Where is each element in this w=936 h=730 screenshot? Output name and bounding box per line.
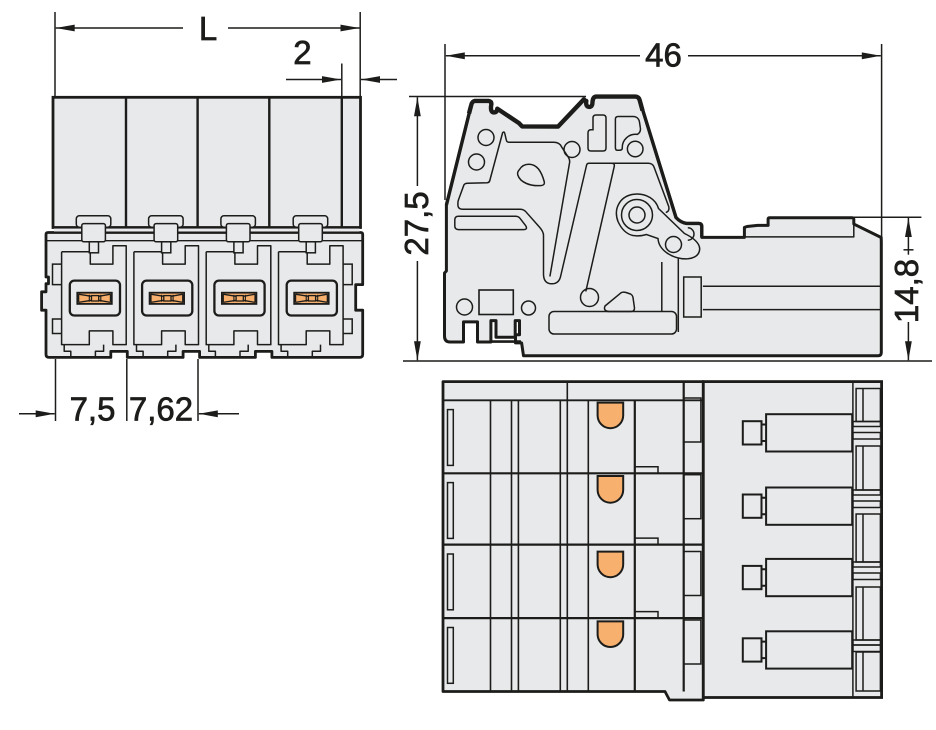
svg-text:7,5: 7,5 [70,391,116,428]
svg-text:2: 2 [293,34,311,71]
svg-text:L: L [199,10,217,47]
svg-text:14,8: 14,8 [888,259,925,323]
svg-text:46: 46 [645,37,682,74]
svg-text:7,62: 7,62 [129,391,193,428]
svg-text:27,5: 27,5 [398,191,435,255]
